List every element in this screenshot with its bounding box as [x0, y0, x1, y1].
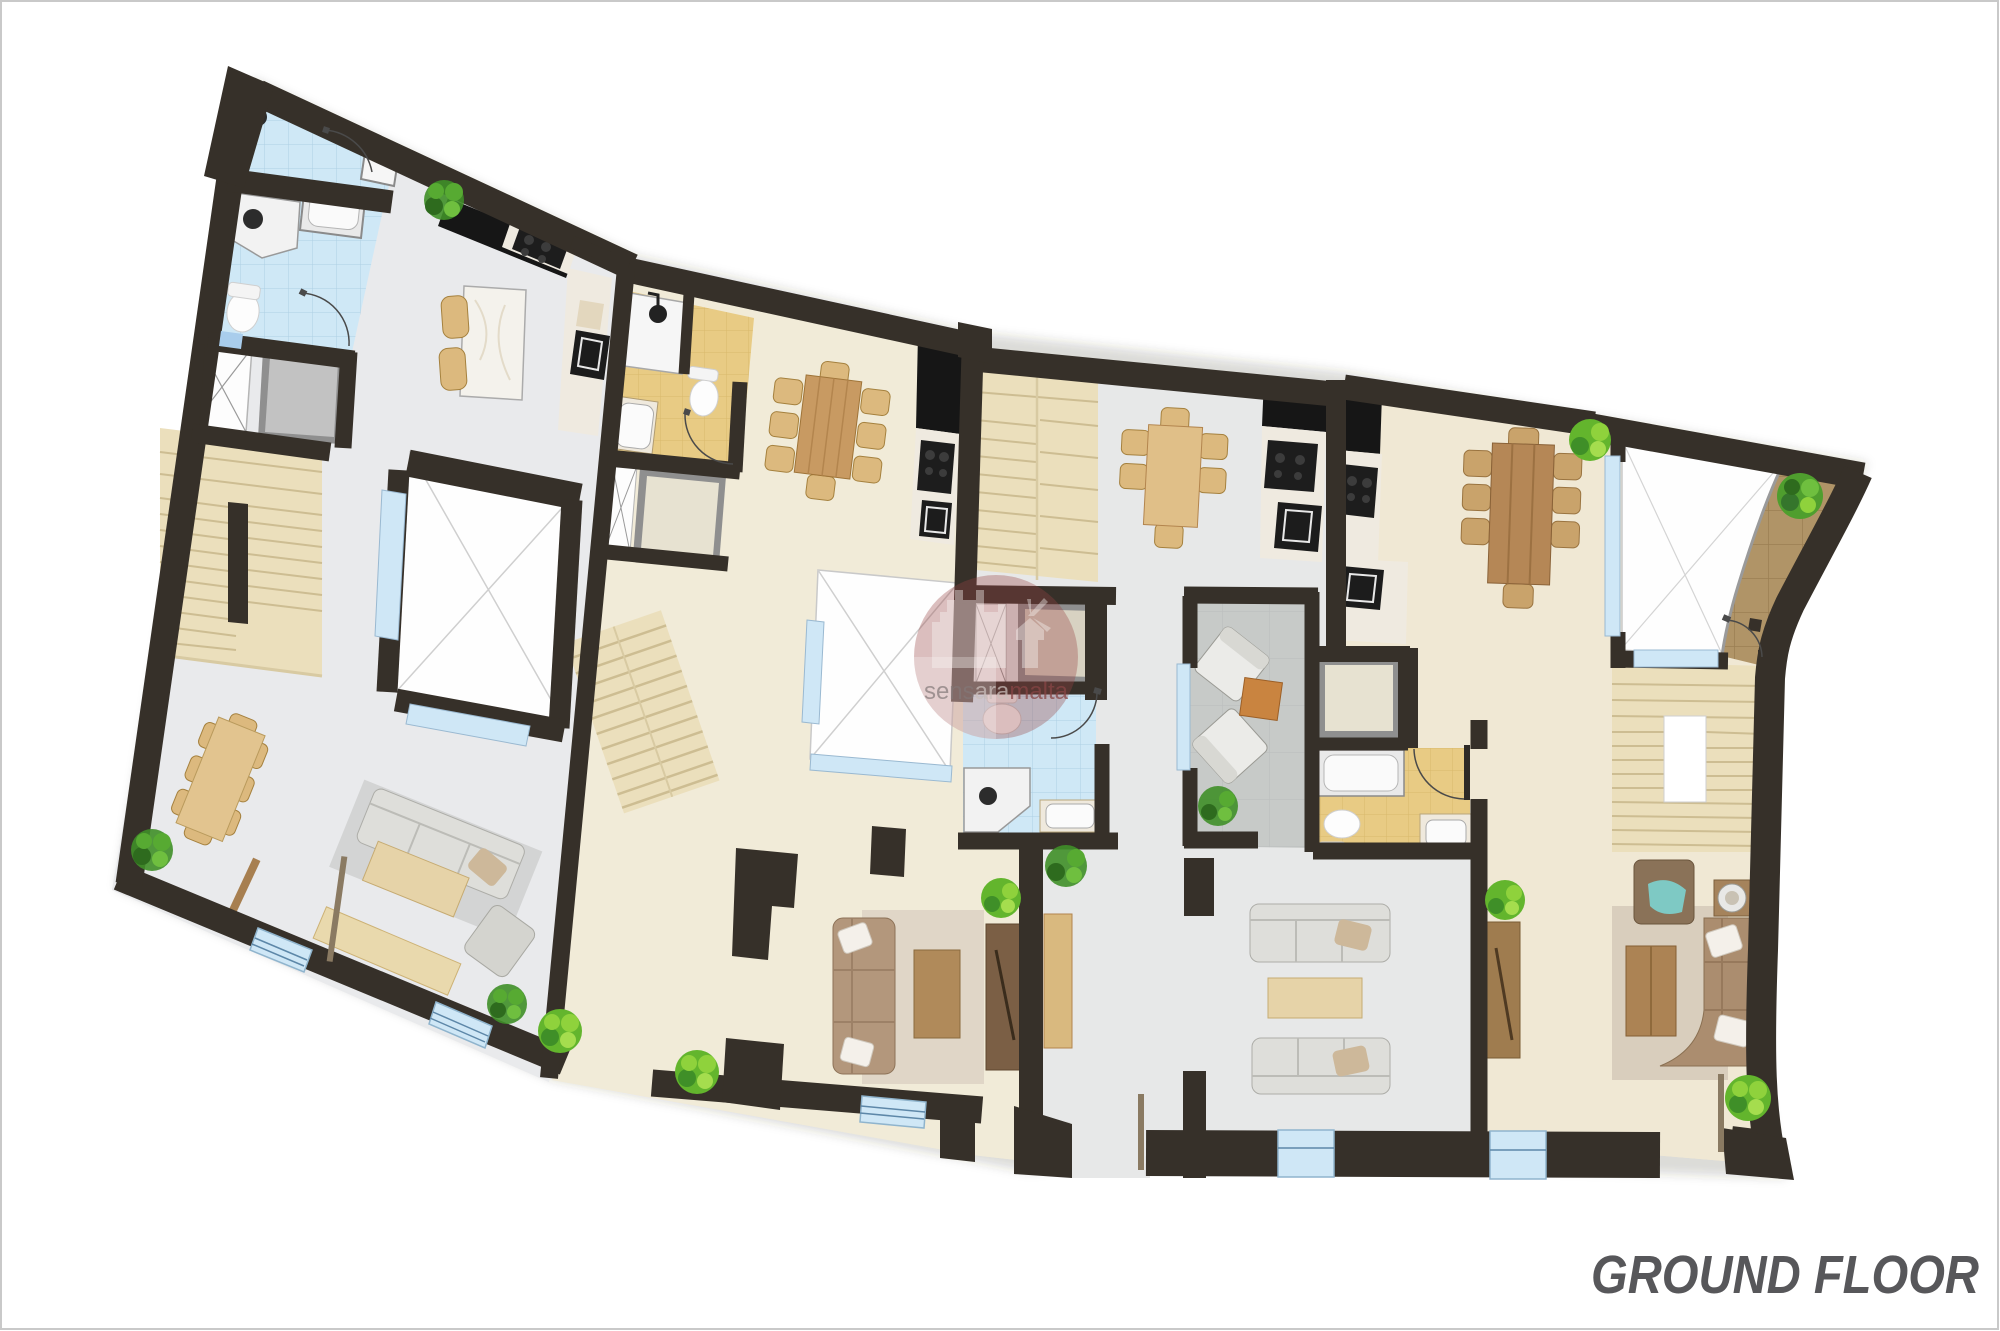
svg-text:sensaramalta: sensaramalta	[924, 678, 1069, 705]
svg-text:GROUND FLOOR: GROUND FLOOR	[1591, 1245, 1979, 1305]
